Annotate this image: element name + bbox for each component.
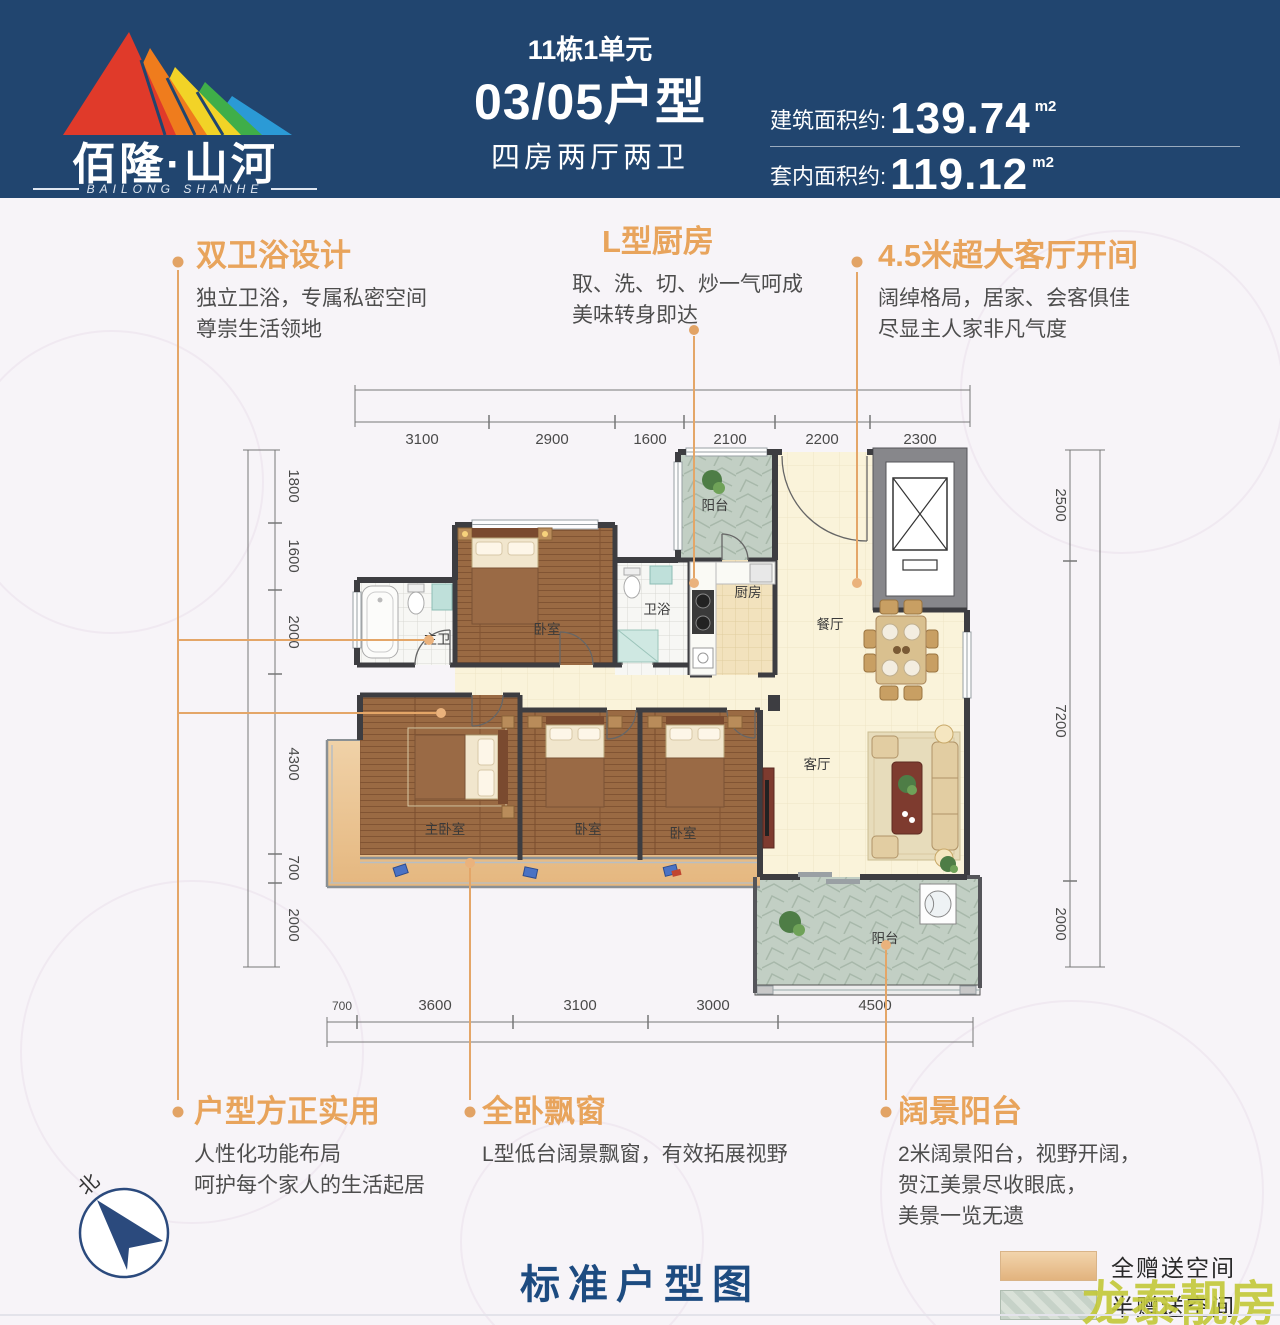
dim-right-2: 7200 — [1052, 704, 1069, 737]
callout-title: L型厨房 — [602, 224, 803, 260]
room-count: 四房两厅两卫 — [420, 134, 760, 176]
header-banner: 佰隆·山河 BAILONG SHANHE 11栋1单元 03/05户型 四房两厅… — [0, 0, 1280, 198]
dim-left-2: 1600 — [285, 539, 302, 572]
mountain-logo-icon — [55, 20, 295, 138]
room-label-bath: 卫浴 — [644, 602, 672, 617]
built-area-value: 139.74 — [890, 94, 1031, 144]
floor-plan: 阳台 厨房 卫浴 卧室 主卫 餐厅 客厅 主卧室 卧室 卧室 阳台 — [320, 440, 990, 1010]
decor-petal — [0, 330, 264, 634]
poster-page: 佰隆·山河 BAILONG SHANHE 11栋1单元 03/05户型 四房两厅… — [0, 0, 1280, 1325]
inner-area-value: 119.12 — [890, 150, 1028, 200]
callout-balcony: 阔景阳台 2米阔景阳台，视野开阔，贺江美景尽收眼底，美景一览无遗 — [898, 1094, 1141, 1232]
dim-left-3: 2000 — [285, 615, 302, 648]
inner-area-label: 套内面积约: — [770, 159, 886, 191]
area-divider — [770, 146, 1240, 147]
callout-title: 全卧飘窗 — [482, 1094, 788, 1130]
vanity — [432, 584, 452, 610]
callout-kitchen: L型厨房 取、洗、切、炒一气呵成美味转身即达 — [572, 224, 803, 331]
vanity — [650, 566, 672, 584]
callout-title: 4.5米超大客厅开间 — [878, 238, 1138, 274]
room-label-living: 客厅 — [804, 756, 831, 772]
callout-living: 4.5米超大客厅开间 阔绰格局，居家、会客俱佳尽显主人家非凡气度 — [878, 238, 1138, 345]
brand-subtitle: BAILONG SHANHE — [25, 182, 325, 196]
bathtub — [362, 586, 398, 658]
sofa-set — [868, 725, 960, 867]
toilet — [624, 568, 640, 598]
room-label-master-bath: 主卫 — [424, 632, 451, 647]
title-block: 11栋1单元 03/05户型 四房两厅两卫 — [420, 0, 760, 198]
dim-right-3: 2000 — [1052, 907, 1069, 940]
elevator-shaft — [873, 448, 967, 610]
room-label-dining: 餐厅 — [817, 617, 844, 632]
inner-area-row: 套内面积约: 119.12 m2 — [770, 148, 1270, 202]
brand-logo: 佰隆·山河 BAILONG SHANHE — [25, 10, 325, 195]
plant — [950, 865, 958, 873]
room-label-balcony-bottom: 阳台 — [872, 931, 899, 946]
callout-dual-bath: 双卫浴设计 独立卫浴，专属私密空间尊崇生活领地 — [196, 238, 427, 345]
dim-left-4: 4300 — [285, 747, 302, 780]
built-area-unit: m2 — [1035, 98, 1057, 115]
callout-title: 双卫浴设计 — [196, 238, 427, 274]
built-area-label: 建筑面积约: — [770, 103, 886, 135]
dim-left-5: 700 — [285, 855, 302, 880]
room-label-bedroom2: 卧室 — [575, 821, 602, 837]
unit-type-title: 03/05户型 — [420, 62, 760, 134]
callout-title: 户型方正实用 — [194, 1094, 425, 1130]
plant — [793, 924, 805, 936]
area-block: 建筑面积约: 139.74 m2 套内面积约: 119.12 m2 — [770, 0, 1270, 198]
room-label-bedroom-top: 卧室 — [534, 621, 561, 637]
room-label-balcony-top: 阳台 — [702, 498, 729, 513]
tv-console — [763, 768, 774, 848]
callout-square-layout: 户型方正实用 人性化功能布局呵护每个家人的生活起居 — [194, 1094, 425, 1201]
toilet — [408, 584, 424, 614]
dim-left-1: 1800 — [285, 469, 302, 502]
room-label-master-bedroom: 主卧室 — [425, 821, 466, 837]
plant — [713, 482, 725, 494]
inner-area-unit: m2 — [1032, 154, 1054, 171]
callout-title: 阔景阳台 — [898, 1094, 1141, 1130]
callout-bay-window: 全卧飘窗 L型低台阔景飘窗，有效拓展视野 — [482, 1094, 788, 1170]
bottom-divider — [0, 1314, 1280, 1316]
built-area-row: 建筑面积约: 139.74 m2 — [770, 92, 1270, 146]
room-label-kitchen: 厨房 — [735, 585, 762, 600]
washing-machine — [920, 884, 956, 924]
room-label-bedroom3: 卧室 — [670, 825, 697, 841]
bed-top-bedroom — [458, 528, 552, 624]
